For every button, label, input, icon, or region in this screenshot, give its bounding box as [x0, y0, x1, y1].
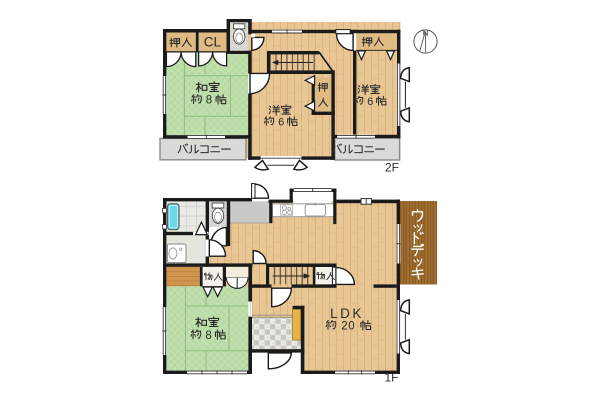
svg-text:20: 20 [341, 320, 355, 332]
svg-text:1F: 1F [384, 371, 398, 385]
svg-text:8: 8 [206, 95, 212, 107]
svg-text:6: 6 [367, 96, 373, 108]
svg-text:LDK: LDK [330, 306, 364, 321]
svg-text:8: 8 [205, 330, 211, 342]
svg-text:CL: CL [204, 35, 222, 50]
svg-text:2F: 2F [385, 160, 399, 174]
svg-text:6: 6 [278, 116, 284, 128]
